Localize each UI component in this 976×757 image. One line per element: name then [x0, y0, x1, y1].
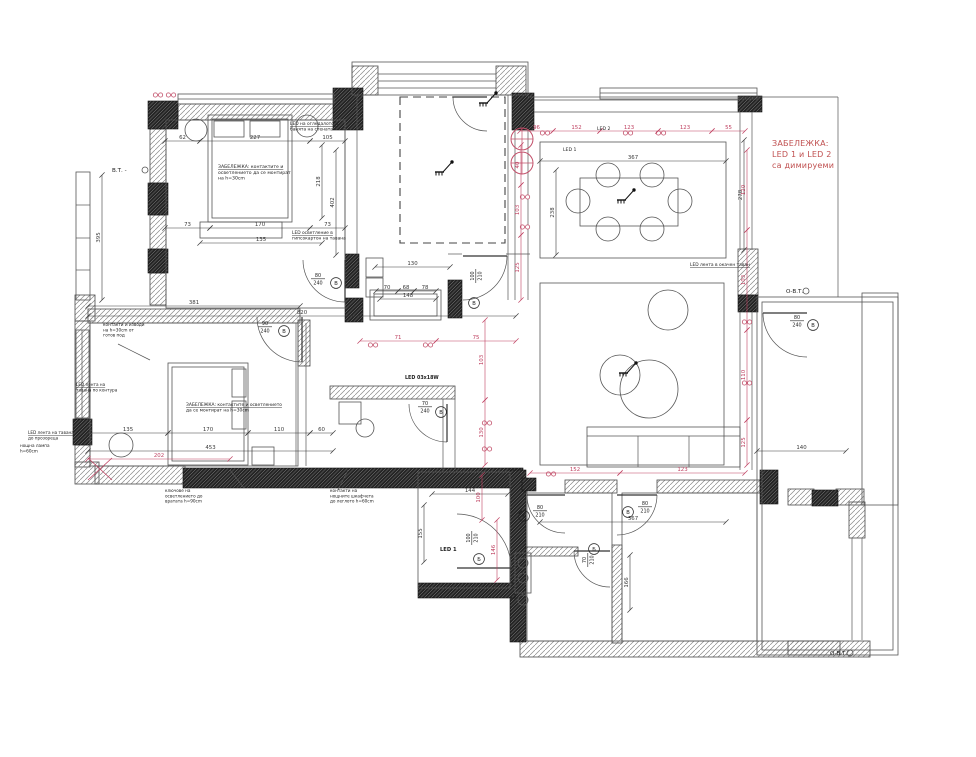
door-swing — [453, 97, 487, 131]
annotation: ключове наосветлението довратата h=90cm — [165, 488, 203, 504]
dimension-label: 71 — [395, 335, 402, 341]
wall-solid — [345, 298, 363, 322]
svg-text:70: 70 — [582, 557, 588, 563]
annotation: LED осветление вгипсокартон на тавана — [292, 230, 346, 242]
svg-text:210: 210 — [477, 271, 483, 280]
wall-hatched — [95, 466, 185, 484]
svg-text:90: 90 — [262, 321, 268, 327]
annotation: LED лента на таванадо прозореца — [28, 430, 74, 440]
dimension-label: 170 — [255, 222, 266, 228]
outline — [200, 222, 282, 238]
socket-icon — [482, 421, 486, 425]
dimension-label: 148 — [403, 293, 414, 299]
svg-text:70: 70 — [422, 401, 428, 407]
dimension-label: 202 — [154, 453, 164, 459]
socket-icon — [526, 195, 530, 199]
dimension-label: 140 — [796, 445, 807, 451]
svg-text:LED лента в окачен таван: LED лента в окачен таван — [690, 262, 750, 268]
wall-hatched — [496, 66, 526, 95]
socket-icon — [488, 447, 492, 451]
wall-solid — [448, 280, 462, 318]
svg-text:240: 240 — [792, 322, 801, 328]
dimension-label: 125 — [515, 262, 521, 272]
svg-text:240: 240 — [313, 280, 322, 286]
svg-text:LED 1: LED 1 — [440, 547, 457, 553]
socket-icon — [368, 343, 372, 347]
socket-icon — [629, 131, 633, 135]
dimension-label: 130 — [479, 427, 485, 438]
svg-text:80: 80 — [315, 273, 321, 279]
svg-text:ЗАБЕЛЕЖКА: контактите и осветл: ЗАБЕЛЕЖКА: контактите и осветлениетода с… — [186, 402, 282, 414]
svg-text:80: 80 — [794, 315, 800, 321]
wall-hatched — [612, 545, 622, 643]
circle-symbol — [803, 288, 809, 294]
wall-solid — [148, 183, 168, 215]
socket-icon — [742, 381, 746, 385]
socket-icon — [662, 131, 666, 135]
annotation: нощна лампаh=60cm — [20, 443, 50, 453]
circle-symbol — [620, 360, 678, 418]
annotation: LED 03x18W — [405, 375, 439, 381]
dimension-label: 146 — [491, 544, 497, 555]
socket-icon — [546, 472, 550, 476]
outline — [339, 402, 361, 424]
socket-icon — [488, 421, 492, 425]
svg-text:LED 1: LED 1 — [563, 147, 576, 153]
outline — [762, 302, 893, 650]
annotation: контакти нанощните шкафчетадо леглото h=… — [330, 488, 374, 504]
door-size-label: 100210 — [466, 531, 479, 545]
dimension-label: 68 — [403, 285, 410, 291]
svg-text:ключове наосветлението доврата: ключове наосветлението довратата h=90cm — [165, 488, 203, 504]
socket-icon — [540, 131, 544, 135]
socket-icon — [374, 343, 378, 347]
annotation: LED на огледалото вбанята на стената — [290, 121, 338, 133]
wall-hatched — [150, 129, 166, 183]
svg-text:Б: Б — [592, 547, 596, 553]
annotation: LED лента натавана по контура — [76, 382, 118, 392]
svg-text:LED лента на таванадо прозорец: LED лента на таванадо прозореца — [28, 430, 74, 440]
svg-text:210: 210 — [535, 512, 544, 518]
svg-text:О-В.Т.: О-В.Т. — [830, 651, 847, 657]
dimension-label: 62 — [179, 135, 186, 141]
outline — [90, 323, 298, 466]
dimension-label: 395 — [96, 232, 102, 242]
floor-plan-canvas: 6222710521840273170731353951307068781483… — [0, 0, 976, 757]
svg-text:100: 100 — [466, 533, 472, 542]
circle-symbol — [566, 189, 590, 213]
wall-hatched — [298, 320, 310, 366]
socket-icon — [742, 320, 746, 324]
dimension-label: 75 — [473, 335, 480, 341]
annotation: ЗАБЕЛЕЖКА: контактите и осветлениетода с… — [186, 402, 282, 414]
dimension-label: 110 — [274, 427, 285, 433]
wall-solid — [522, 478, 536, 491]
dimension-label: 123 — [624, 125, 634, 131]
svg-text:LED на огледалото вбанята на с: LED на огледалото вбанята на стената — [290, 121, 338, 133]
outline — [862, 293, 898, 505]
dimension-label: 152 — [571, 125, 581, 131]
circle-symbol — [640, 217, 664, 241]
door-swing — [303, 260, 345, 302]
socket-icon — [623, 131, 627, 135]
dimension-label: 105 — [322, 135, 332, 141]
door-size-label: 80240 — [790, 315, 804, 328]
dimension-label: 402 — [330, 197, 336, 207]
annotation: LED 1 — [440, 547, 457, 553]
dimension-label: 60 — [318, 427, 325, 433]
dimension-label: 820 — [297, 310, 308, 316]
wall-solid — [148, 101, 178, 129]
svg-text:80: 80 — [642, 501, 648, 507]
svg-text:210: 210 — [589, 555, 595, 564]
door-size-label: 70210 — [582, 553, 595, 567]
wall-solid — [738, 295, 758, 312]
dimension-label: 73 — [184, 222, 191, 228]
wall-hatched — [150, 273, 166, 305]
socket-icon — [546, 131, 550, 135]
svg-text:LED лента натавана по контура: LED лента натавана по контура — [76, 382, 118, 392]
svg-text:100: 100 — [470, 271, 476, 280]
svg-text:240: 240 — [420, 408, 429, 414]
outline — [76, 172, 90, 300]
wall-solid — [183, 468, 523, 488]
svg-text:В: В — [522, 514, 526, 520]
dimension-label: 367 — [628, 155, 638, 161]
wall-solid — [738, 96, 762, 112]
ceiling-dashed-outline — [400, 97, 505, 243]
wall-hatched — [330, 386, 455, 399]
door-size-label: 80210 — [638, 501, 652, 514]
svg-text:80: 80 — [537, 505, 543, 511]
svg-text:LED 2: LED 2 — [597, 126, 610, 132]
socket-icon — [429, 343, 433, 347]
svg-text:нощна лампаh=60cm: нощна лампаh=60cm — [20, 443, 50, 453]
plan-line — [118, 344, 150, 360]
drawing-note: ЗАБЕЛЕЖКА: LED 1 и LED 2 са димируеми — [772, 138, 872, 171]
svg-text:В: В — [334, 281, 338, 287]
socket-icon — [656, 131, 660, 135]
dimension-label: 130 — [407, 261, 418, 267]
dimension-label: 78 — [422, 285, 429, 291]
wall-hatched — [849, 502, 865, 538]
socket-icon — [423, 343, 427, 347]
door-size-label: 80240 — [311, 273, 325, 286]
svg-text:контакти и изводина h=30cm отг: контакти и изводина h=30cm отготов под — [103, 322, 145, 338]
circle-symbol — [596, 217, 620, 241]
note-line: са димируеми — [772, 160, 872, 171]
svg-text:Б: Б — [477, 557, 481, 563]
dimension-label: 218 — [316, 176, 322, 187]
dimension-label: 70 — [384, 285, 391, 291]
annotation: LED 2 — [597, 126, 610, 132]
wall-solid — [418, 583, 515, 598]
circle-symbol — [109, 433, 133, 457]
outline — [587, 427, 740, 467]
dimension-label: 227 — [250, 135, 260, 141]
wall-solid — [760, 470, 778, 504]
dimension-label: 135 — [123, 427, 133, 433]
socket-icon — [748, 320, 752, 324]
circle-symbol — [142, 167, 148, 173]
annotation: О-В.Т. — [830, 651, 847, 657]
svg-text:В: В — [282, 329, 286, 335]
door-size-label: 100210 — [470, 269, 483, 283]
wall-solid — [345, 254, 359, 288]
dimension-label: 103 — [479, 355, 485, 365]
dimension-label: 120 — [741, 184, 747, 195]
socket-icon — [172, 93, 176, 97]
wall-hatched — [75, 321, 90, 419]
annotation: В.Т. - — [112, 168, 127, 174]
wall-solid — [512, 93, 534, 130]
svg-text:LED осветление вгипсокартон на: LED осветление вгипсокартон на тавана — [292, 230, 346, 242]
svg-text:В: В — [626, 510, 630, 516]
dimension-label: 166 — [624, 577, 630, 588]
circle-symbol — [185, 119, 207, 141]
outline — [540, 283, 724, 465]
annotation: LED лента в окачен таван — [690, 262, 750, 268]
wall-solid — [148, 249, 168, 273]
wall-hatched — [150, 215, 166, 249]
circle-symbol — [668, 189, 692, 213]
dimension-label: 103 — [741, 275, 747, 285]
svg-text:В: В — [439, 410, 443, 416]
socket-icon — [552, 472, 556, 476]
svg-text:В: В — [472, 301, 476, 307]
dimension-label: 381 — [189, 300, 199, 306]
wall-solid — [510, 470, 526, 642]
wall-hatched — [565, 480, 617, 493]
outline — [580, 178, 678, 226]
drawing-sheet: 6222710521840273170731353951307068781483… — [0, 0, 976, 757]
annotation: контакти и изводина h=30cm отготов под — [103, 322, 145, 338]
annotation: ЗАБЕЛЕЖКА: контактите иосветлението да с… — [218, 164, 291, 182]
socket-icon — [526, 225, 530, 229]
annotation: LED 1 — [563, 147, 576, 153]
dimension-label: 123 — [680, 125, 690, 131]
dimension-label: 238 — [550, 207, 556, 218]
dimension-label: 40 — [515, 161, 521, 168]
door-swing — [617, 495, 657, 535]
outline — [252, 447, 274, 465]
door-size-label: 80210 — [533, 505, 547, 518]
dimension-label: 453 — [205, 445, 215, 451]
wall-solid — [812, 490, 838, 506]
socket-icon — [153, 93, 157, 97]
outline — [622, 493, 757, 641]
dimension-label: 170 — [203, 427, 214, 433]
socket-icon — [159, 93, 163, 97]
socket-icon — [166, 93, 170, 97]
note-line: LED 1 и LED 2 — [772, 149, 872, 160]
svg-text:контакти нанощните шкафчетадо: контакти нанощните шкафчетадо леглото h=… — [330, 488, 374, 504]
dimension-label: 155 — [418, 528, 424, 538]
svg-text:В: В — [811, 323, 815, 329]
dimension-label: 144 — [465, 488, 476, 494]
svg-text:ЗАБЕЛЕЖКА: контактите иосветле: ЗАБЕЛЕЖКА: контактите иосветлението да с… — [218, 164, 291, 182]
circle-symbol — [648, 290, 688, 330]
note-title: ЗАБЕЛЕЖКА: — [772, 138, 872, 149]
dimension-label: 73 — [324, 222, 331, 228]
socket-icon — [748, 381, 752, 385]
svg-text:О-В.Т.: О-В.Т. — [786, 289, 803, 295]
svg-text:В.Т. -: В.Т. - — [112, 168, 127, 174]
dimension-label: 110 — [741, 369, 747, 380]
door-swing — [527, 495, 565, 533]
circle-symbol — [596, 163, 620, 187]
dimension-label: 125 — [741, 437, 747, 447]
wall-hatched — [738, 249, 758, 295]
dimension-label: 152 — [570, 467, 580, 473]
floor-plan: 6222710521840273170731353951307068781483… — [0, 0, 976, 757]
socket-icon — [482, 447, 486, 451]
dimension-label: 96 — [533, 125, 540, 131]
circle-symbol — [356, 419, 374, 437]
dimension-label: 103 — [515, 205, 521, 215]
annotation: О-В.Т. — [786, 289, 803, 295]
dimension-label: 123 — [677, 467, 687, 473]
door-swing — [763, 313, 807, 357]
outline — [214, 121, 244, 137]
wall-hatched — [788, 489, 814, 505]
svg-text:240: 240 — [260, 328, 269, 334]
dimension-label: 55 — [725, 125, 732, 131]
door-size-label: 70240 — [418, 401, 432, 414]
dimension-label: 100 — [476, 492, 482, 503]
svg-text:210: 210 — [473, 533, 479, 542]
wall-hatched — [178, 104, 334, 120]
dimension-label: 135 — [256, 237, 266, 243]
wall-hatched — [657, 480, 760, 493]
circle-symbol — [640, 163, 664, 187]
svg-text:LED 03x18W: LED 03x18W — [405, 375, 439, 381]
svg-text:210: 210 — [640, 508, 649, 514]
